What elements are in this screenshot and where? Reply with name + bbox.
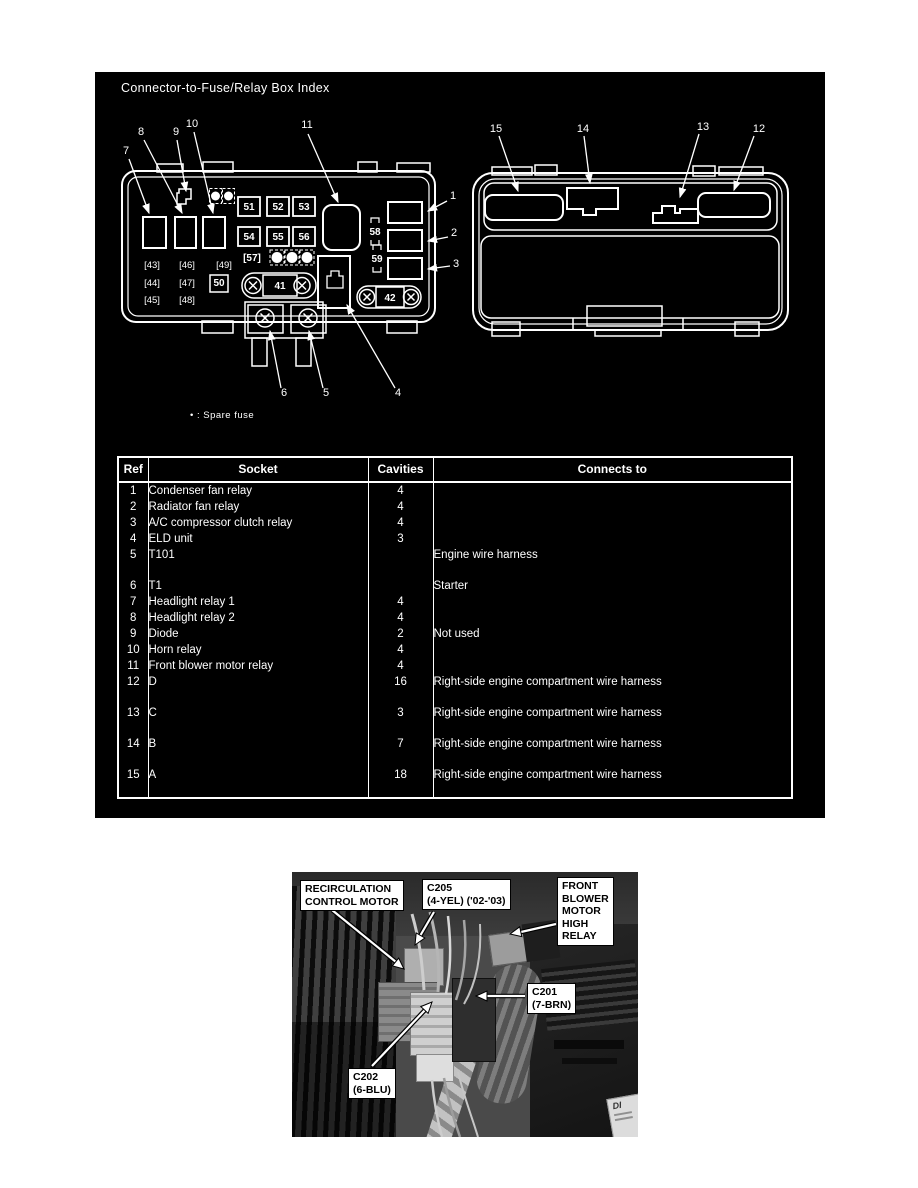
cell-socket: Headlight relay 1 <box>148 594 368 610</box>
table-row: 4ELD unit3 <box>118 531 792 547</box>
label-c205: C205 (4-YEL) ('02-'03) <box>422 879 511 910</box>
cell-cavities: 3 <box>368 705 433 736</box>
callout-label: 4 <box>395 387 401 399</box>
eld-socket <box>318 256 350 308</box>
cell-cavities: 4 <box>368 658 433 674</box>
cell-cavities: 4 <box>368 610 433 626</box>
fuse-label: [45] <box>144 295 160 306</box>
cell-connects: Right-side engine compartment wire harne… <box>433 736 792 767</box>
label-line: FRONT <box>562 880 598 892</box>
bottom-notch <box>573 318 683 336</box>
fuse-label: [46] <box>179 260 195 271</box>
fuse-relay-index-panel: Connector-to-Fuse/Relay Box Index <box>95 72 825 818</box>
cell-socket: C <box>148 705 368 736</box>
diode-socket <box>177 189 191 204</box>
fuse-label: 56 <box>298 232 310 243</box>
callout-label: 3 <box>453 258 459 270</box>
cell-ref: 3 <box>118 515 148 531</box>
cell-cavities: 4 <box>368 482 433 499</box>
fuse-label: 52 <box>272 202 284 213</box>
fuse-box-top-view <box>122 162 435 366</box>
label-c202: C202 (6-BLU) <box>348 1068 396 1099</box>
cell-ref: 5 <box>118 547 148 578</box>
cell-socket: Horn relay <box>148 642 368 658</box>
cell-ref: 12 <box>118 674 148 705</box>
label-c201: C201 (7-BRN) <box>527 983 576 1014</box>
cell-socket: T101 <box>148 547 368 578</box>
cell-socket: Front blower motor relay <box>148 658 368 674</box>
cell-socket: A/C compressor clutch relay <box>148 515 368 531</box>
cell-ref: 4 <box>118 531 148 547</box>
fuse-label: [49] <box>216 260 232 271</box>
cell-cavities <box>368 547 433 578</box>
connector-d <box>698 193 770 217</box>
header-connects-to: Connects to <box>433 457 792 482</box>
fuse-label: 50 <box>213 278 225 289</box>
cell-connects <box>433 610 792 626</box>
cell-connects <box>433 482 792 499</box>
label-line: HIGH <box>562 918 588 930</box>
callout-label: 8 <box>138 126 144 138</box>
index-table-body: 1Condenser fan relay42Radiator fan relay… <box>118 482 792 798</box>
cell-ref: 7 <box>118 594 148 610</box>
cell-ref: 1 <box>118 482 148 499</box>
label-line: C205 <box>427 882 452 894</box>
cell-cavities <box>368 578 433 594</box>
cell-ref: 9 <box>118 626 148 642</box>
callout-label: 2 <box>451 227 457 239</box>
cell-cavities: 3 <box>368 531 433 547</box>
header-ref: Ref <box>118 457 148 482</box>
label-line: CONTROL MOTOR <box>305 896 399 908</box>
table-row: 3A/C compressor clutch relay4 <box>118 515 792 531</box>
label-line: BLOWER <box>562 893 609 905</box>
manual-page: { "panel": { "title": "Connector-to-Fuse… <box>0 0 918 1188</box>
blower-relay-socket <box>323 205 360 250</box>
callout-label: 5 <box>323 387 329 399</box>
fuse-label: [48] <box>179 295 195 306</box>
cell-connects: Engine wire harness <box>433 547 792 578</box>
label-line: RELAY <box>562 930 597 942</box>
box-inner-outline <box>479 179 782 324</box>
fuse-label: [44] <box>144 278 160 289</box>
connector-a <box>485 195 563 220</box>
fuse-box-diagram: 7 8 9 10 11 1 2 3 4 5 6 15 14 13 12 51 5… <box>95 72 825 452</box>
table-row: 2Radiator fan relay4 <box>118 499 792 515</box>
box-tabs <box>492 165 763 336</box>
table-row: 1Condenser fan relay4 <box>118 482 792 499</box>
cell-cavities: 4 <box>368 642 433 658</box>
label-line: MOTOR <box>562 905 601 917</box>
callout-label: 6 <box>281 387 287 399</box>
table-row: 8Headlight relay 24 <box>118 610 792 626</box>
table-row: 15A18Right-side engine compartment wire … <box>118 767 792 798</box>
cell-connects <box>433 499 792 515</box>
cell-ref: 11 <box>118 658 148 674</box>
cell-connects: Right-side engine compartment wire harne… <box>433 674 792 705</box>
cell-ref: 14 <box>118 736 148 767</box>
table-row: 6T1Starter <box>118 578 792 594</box>
bolt-label: 41 <box>274 281 286 292</box>
cell-socket: T1 <box>148 578 368 594</box>
spare-fuse-note: • : Spare fuse <box>190 410 254 421</box>
callout-label: 1 <box>450 190 456 202</box>
label-line: C201 <box>532 986 557 998</box>
table-row: 14B7Right-side engine compartment wire h… <box>118 736 792 767</box>
header-cavities: Cavities <box>368 457 433 482</box>
callout-label: 13 <box>697 121 709 133</box>
connector-c <box>653 206 698 223</box>
spare-fuses-top <box>210 189 235 204</box>
cell-ref: 8 <box>118 610 148 626</box>
callout-label: 15 <box>490 123 502 135</box>
callout-label: 9 <box>173 126 179 138</box>
relay-sockets-right <box>388 202 422 279</box>
cell-connects <box>433 658 792 674</box>
label-line: RECIRCULATION <box>305 883 391 895</box>
cell-cavities: 2 <box>368 626 433 642</box>
battery-terminals <box>245 302 326 366</box>
table-header-row: Ref Socket Cavities Connects to <box>118 457 792 482</box>
fuse-label: [43] <box>144 260 160 271</box>
table-row: 10Horn relay4 <box>118 642 792 658</box>
cell-connects: Starter <box>433 578 792 594</box>
callout-label: 14 <box>577 123 589 135</box>
cell-socket: B <box>148 736 368 767</box>
label-recirculation-control-motor: RECIRCULATION CONTROL MOTOR <box>300 880 404 911</box>
cell-connects <box>433 594 792 610</box>
table-row: 7Headlight relay 14 <box>118 594 792 610</box>
cell-ref: 15 <box>118 767 148 798</box>
cell-cavities: 4 <box>368 499 433 515</box>
cell-ref: 13 <box>118 705 148 736</box>
callout-label: 10 <box>186 118 198 130</box>
cell-connects: Not used <box>433 626 792 642</box>
cell-socket: A <box>148 767 368 798</box>
table-row: 11Front blower motor relay4 <box>118 658 792 674</box>
callout-label: 7 <box>123 145 129 157</box>
cell-cavities: 4 <box>368 515 433 531</box>
fuse-label: 53 <box>298 202 310 213</box>
connector-b <box>567 188 618 215</box>
cell-connects: Right-side engine compartment wire harne… <box>433 705 792 736</box>
socket-label: 58 <box>369 227 381 238</box>
cell-socket: Diode <box>148 626 368 642</box>
table-row: 13C3Right-side engine compartment wire h… <box>118 705 792 736</box>
cell-socket: Radiator fan relay <box>148 499 368 515</box>
cell-socket: ELD unit <box>148 531 368 547</box>
label-line: (4-YEL) ('02-'03) <box>427 895 506 907</box>
fuse-label: 54 <box>243 232 255 243</box>
relay-sockets-left <box>143 217 225 248</box>
table-row: 9Diode2Not used <box>118 626 792 642</box>
spare-fuses-57 <box>270 250 314 265</box>
socket-label: 59 <box>371 254 383 265</box>
cell-connects <box>433 515 792 531</box>
label-front-blower-motor-high-relay: FRONT BLOWER MOTOR HIGH RELAY <box>557 877 614 946</box>
cell-connects <box>433 531 792 547</box>
connector-band <box>484 183 777 230</box>
cell-cavities: 4 <box>368 594 433 610</box>
table-row: 5T101Engine wire harness <box>118 547 792 578</box>
cell-connects: Right-side engine compartment wire harne… <box>433 767 792 798</box>
engine-bay-photo: RECIRCULATION CONTROL MOTOR C205 (4-YEL)… <box>292 872 638 1137</box>
callout-label: 11 <box>301 119 312 131</box>
cell-ref: 10 <box>118 642 148 658</box>
cell-ref: 6 <box>118 578 148 594</box>
cell-cavities: 16 <box>368 674 433 705</box>
callout-label: 12 <box>753 123 765 135</box>
fuse-box-underside-view <box>473 165 788 336</box>
table-row: 12D16Right-side engine compartment wire … <box>118 674 792 705</box>
label-line: (7-BRN) <box>532 999 571 1011</box>
bottom-socket <box>587 306 662 326</box>
label-line: C202 <box>353 1071 378 1083</box>
fuse-label: [47] <box>179 278 195 289</box>
fuse-label: 51 <box>243 202 255 213</box>
cell-ref: 2 <box>118 499 148 515</box>
connector-index-table: Ref Socket Cavities Connects to 1Condens… <box>117 456 793 799</box>
cell-cavities: 18 <box>368 767 433 798</box>
header-socket: Socket <box>148 457 368 482</box>
label-line: (6-BLU) <box>353 1084 391 1096</box>
cell-cavities: 7 <box>368 736 433 767</box>
cell-socket: Headlight relay 2 <box>148 610 368 626</box>
fuse-label: 55 <box>272 232 284 243</box>
cell-socket: D <box>148 674 368 705</box>
cell-connects <box>433 642 792 658</box>
cell-socket: Condenser fan relay <box>148 482 368 499</box>
bolt-label: 42 <box>384 293 396 304</box>
fuse-label: [57] <box>243 253 261 264</box>
